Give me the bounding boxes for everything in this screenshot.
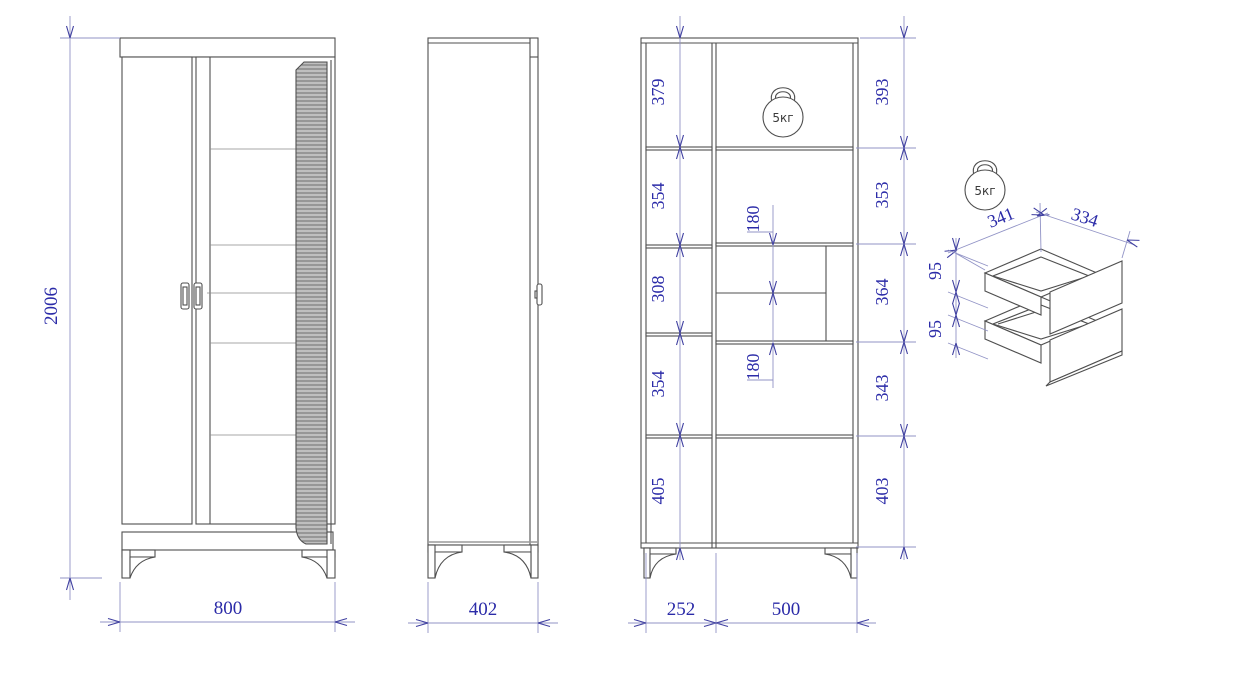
front-ribbed-strip (296, 62, 327, 544)
door-handle-right (194, 283, 202, 309)
drawing-canvas: 5кг (0, 0, 1240, 698)
dim-label: 180 (743, 206, 763, 233)
shelf (716, 243, 853, 246)
dim-side-depth: 402 (408, 582, 558, 633)
dim-label: 379 (648, 79, 668, 106)
shelf (716, 341, 853, 344)
dim-label: 354 (648, 183, 668, 210)
front-legs (122, 550, 335, 578)
door-handle-left (181, 283, 189, 309)
dim-label: 393 (872, 79, 892, 106)
side-body (428, 38, 538, 545)
dim-label: 364 (872, 279, 892, 306)
side-legs (428, 545, 538, 578)
dim-label: 500 (772, 599, 801, 620)
side-view (428, 38, 542, 578)
dim-label: 252 (667, 599, 696, 620)
front-cornice (120, 38, 335, 57)
dim-label: 95 (925, 320, 945, 338)
dim-label: 308 (648, 276, 668, 303)
dim-front-height: 2006 (41, 16, 120, 600)
dim-label-front-width: 800 (214, 598, 243, 619)
shelf (716, 147, 853, 150)
dim-label: 334 (1069, 204, 1101, 231)
dim-label: 95 (925, 262, 945, 280)
technical-drawing: 5кг (0, 0, 1240, 698)
dim-label: 353 (872, 182, 892, 209)
dim-chain-internal-right: 393 353 364 343 403 (856, 16, 916, 560)
internal-section-view (641, 38, 858, 578)
drawer-detail-view (965, 161, 1122, 386)
dim-label-side-depth: 402 (469, 599, 498, 620)
dim-label: 403 (872, 478, 892, 505)
dim-label-front-height: 2006 (41, 287, 62, 325)
dim-internal-bottom-widths: 252 500 (628, 553, 876, 633)
dim-front-width: 800 (100, 582, 355, 632)
dim-label: 354 (648, 371, 668, 398)
dim-label: 343 (872, 375, 892, 402)
front-view (120, 38, 335, 578)
dim-label: 180 (743, 354, 763, 381)
dim-label: 405 (648, 478, 668, 505)
shelf (716, 435, 853, 438)
internal-legs (644, 548, 857, 578)
